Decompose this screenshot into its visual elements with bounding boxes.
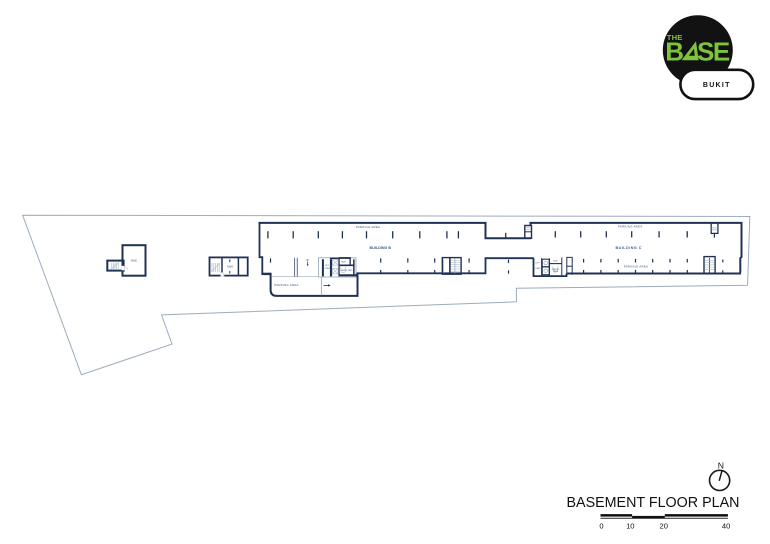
svg-text:20: 20 <box>659 522 667 531</box>
svg-text:PARKING AREA: PARKING AREA <box>274 283 299 287</box>
svg-text:BUILDING C: BUILDING C <box>615 246 642 250</box>
svg-text:UP: UP <box>306 259 310 262</box>
svg-text:M&E: M&E <box>227 264 233 268</box>
svg-text:0: 0 <box>599 522 603 531</box>
svg-text:M&E: M&E <box>553 260 558 262</box>
svg-text:PARKING AREA: PARKING AREA <box>618 225 643 229</box>
svg-text:BASEMENT FLOOR PLAN: BASEMENT FLOOR PLAN <box>567 495 740 511</box>
svg-text:N: N <box>718 460 724 470</box>
svg-text:M&E: M&E <box>131 259 137 263</box>
svg-text:B: B <box>665 36 683 66</box>
svg-text:M&E: M&E <box>341 261 346 263</box>
svg-text:BUILDING B: BUILDING B <box>370 246 392 250</box>
svg-text:40: 40 <box>722 522 730 531</box>
svg-text:PARKING AREA: PARKING AREA <box>624 265 649 269</box>
svg-text:LOBBY: LOBBY <box>534 268 541 270</box>
svg-text:BUKIT: BUKIT <box>703 82 731 89</box>
svg-text:PARKING AREA: PARKING AREA <box>356 225 381 229</box>
svg-text:SE: SE <box>697 36 730 66</box>
svg-text:LOBBY: LOBBY <box>324 268 331 270</box>
svg-text:WATER TANK: WATER TANK <box>341 269 353 272</box>
svg-text:TANK: TANK <box>553 270 559 273</box>
svg-text:10: 10 <box>626 522 634 531</box>
